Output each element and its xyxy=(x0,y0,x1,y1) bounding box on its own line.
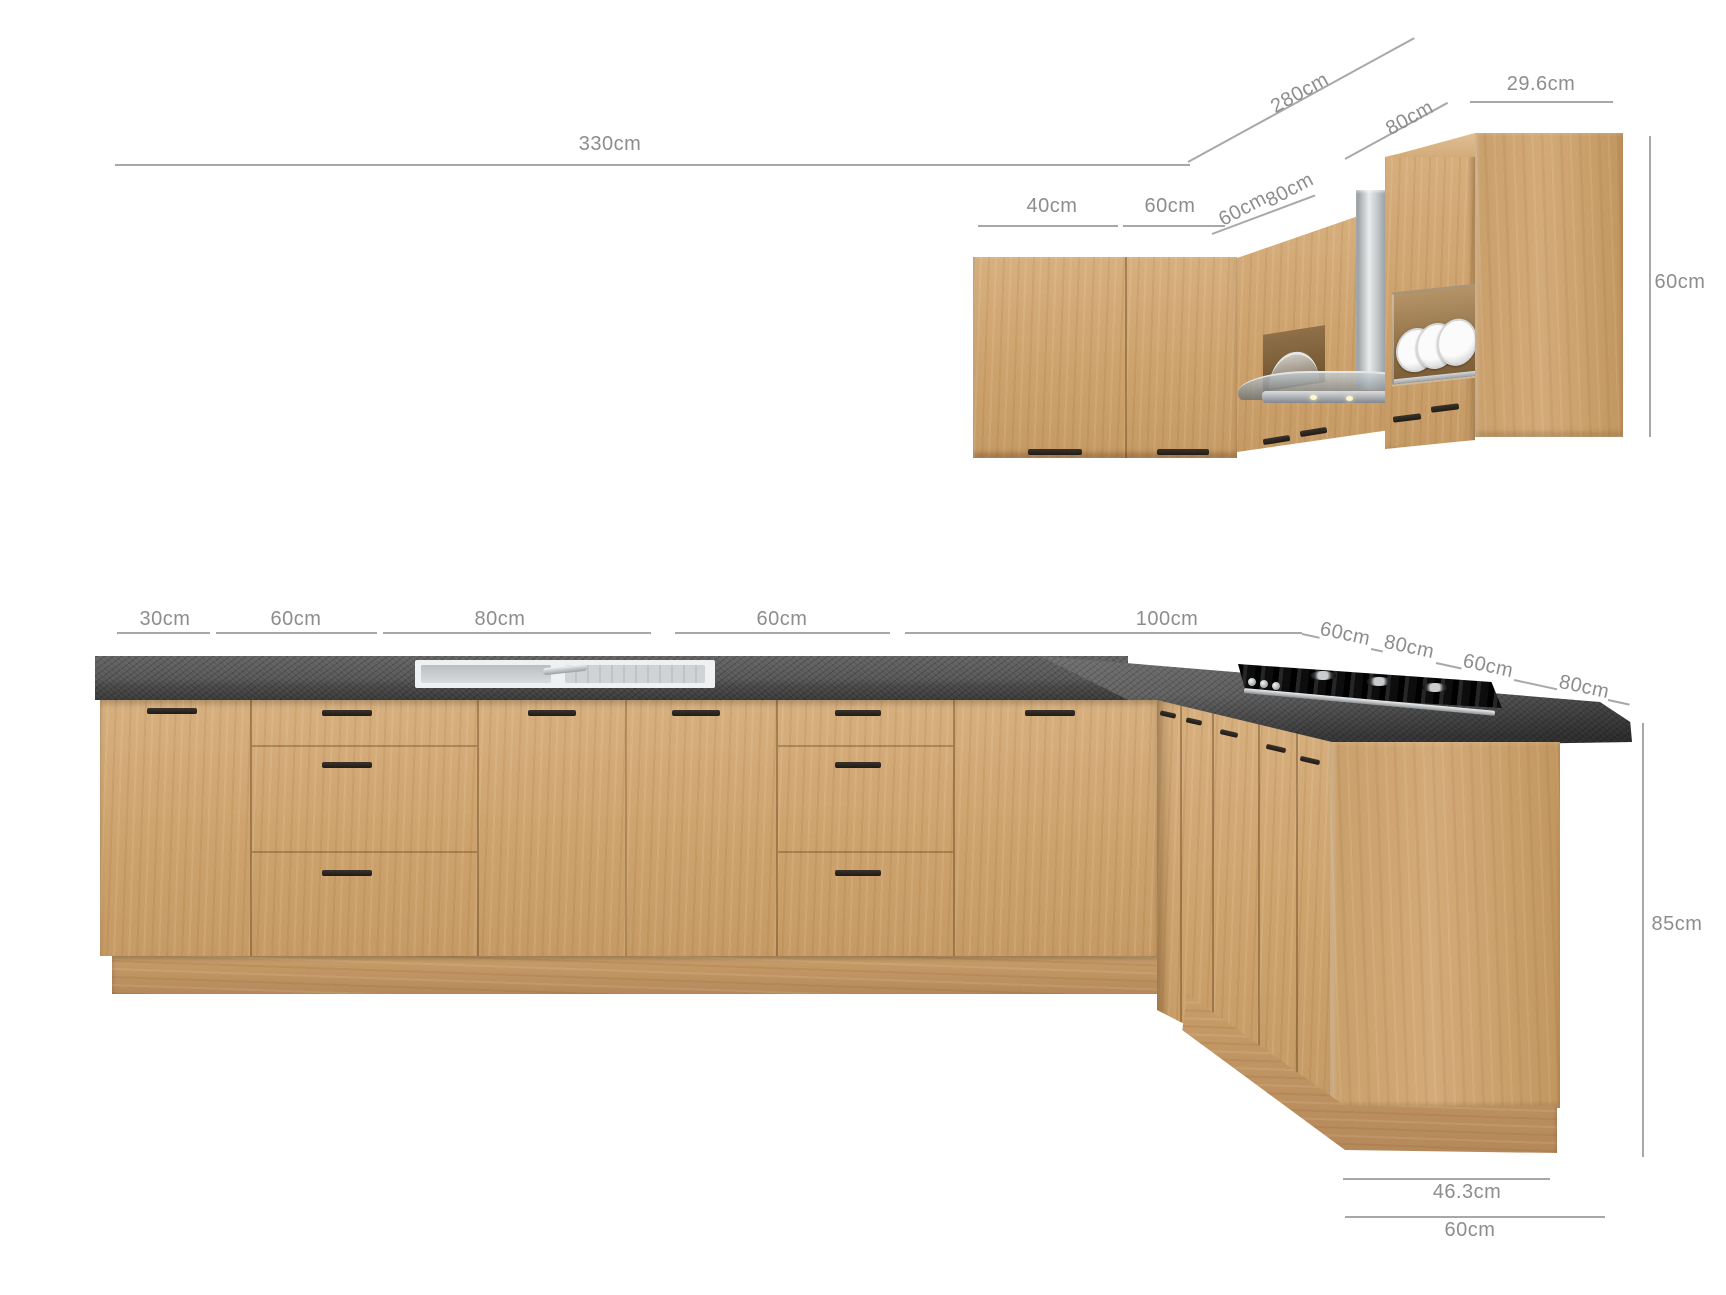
cabinet-handle xyxy=(1220,729,1239,738)
cabinet-handle xyxy=(1160,710,1177,718)
dim-wall-total-line xyxy=(115,164,1190,166)
unit-seam xyxy=(1296,733,1298,1081)
hood-light xyxy=(1346,396,1353,401)
burner-cap xyxy=(1310,671,1336,680)
kitchen-dimension-diagram: 330cm 280cm 80cm 29.6cm 40cm 60cm 60cm 8… xyxy=(0,0,1726,1295)
cabinet-handle xyxy=(1025,710,1075,716)
dim-base-height-label: 85cm xyxy=(1622,913,1726,936)
wall-cabinet-front-group xyxy=(973,257,1237,458)
dim-end-panel-depth-label: 46.3cm xyxy=(1412,1181,1522,1204)
cabinet-handle xyxy=(1300,427,1328,437)
drawer-handle xyxy=(835,710,881,716)
dim-base1-line xyxy=(117,632,210,634)
dim-end-panel-depth-line xyxy=(1343,1178,1550,1180)
cabinet-handle xyxy=(1263,435,1291,445)
cabinet-handle xyxy=(1431,403,1460,412)
cabinet-handle xyxy=(1266,744,1287,753)
drawer-seam xyxy=(778,851,953,853)
cabinet-handle xyxy=(1300,756,1321,765)
wall-cabinet-end-side-panel xyxy=(1475,133,1623,437)
dim-base5-label: 100cm xyxy=(1112,608,1222,631)
cabinet-handle xyxy=(528,710,576,716)
dim-base4-label: 60cm xyxy=(727,608,837,631)
unit-seam xyxy=(776,700,778,956)
dim-upper-end-width-line xyxy=(1470,101,1613,103)
drawer-handle xyxy=(835,762,881,768)
glass-niche-plates xyxy=(1392,283,1479,386)
dim-base4-line xyxy=(675,632,890,634)
sink xyxy=(415,660,715,688)
drawer-handle xyxy=(322,870,372,876)
sink-bowl xyxy=(421,665,551,683)
drawer-handle xyxy=(322,710,372,716)
hob-knob xyxy=(1272,682,1280,690)
hood-chimney-duct xyxy=(1356,190,1390,390)
unit-seam xyxy=(1212,713,1214,1038)
dim-upper-door-left-line xyxy=(978,225,1118,227)
wall-cabinet-end-front xyxy=(1385,135,1475,449)
base-end-side-panel xyxy=(1330,742,1560,1108)
dim-end-total-depth-line xyxy=(1345,1216,1605,1218)
dim-wall-return-label: 280cm xyxy=(1246,57,1354,130)
door-seam xyxy=(625,700,627,956)
drawer-handle xyxy=(835,870,881,876)
cabinet-handle xyxy=(1157,449,1209,455)
drawer-seam xyxy=(252,851,477,853)
base-cabinets-front xyxy=(100,700,1157,956)
dim-base2-label: 60cm xyxy=(241,608,351,631)
dim-base5-line xyxy=(905,632,1302,634)
dim-base3-line xyxy=(383,632,651,634)
dim-base2-line xyxy=(216,632,377,634)
unit-seam xyxy=(1258,724,1260,1062)
cabinet-handle xyxy=(672,710,720,716)
cabinet-handle xyxy=(1186,717,1203,725)
hob-knob xyxy=(1248,678,1256,686)
unit-seam xyxy=(1180,705,1182,1022)
plinth-front xyxy=(112,956,1187,994)
dim-wall-total-label: 330cm xyxy=(555,133,665,156)
cabinet-handle xyxy=(1393,413,1422,422)
hob-knob xyxy=(1260,680,1268,688)
drawer-seam xyxy=(778,745,953,747)
dim-upper-end-width-label: 29.6cm xyxy=(1486,73,1596,96)
unit-seam xyxy=(250,700,252,956)
dim-upper-height-label: 60cm xyxy=(1625,271,1726,294)
cabinet-handle xyxy=(1028,449,1082,455)
unit-seam xyxy=(953,700,955,956)
dim-base-height-line xyxy=(1642,723,1644,1157)
burner-cap xyxy=(1422,683,1448,692)
drawer-seam xyxy=(252,745,477,747)
niche-shelf xyxy=(1394,371,1477,385)
dim-base3-label: 80cm xyxy=(445,608,555,631)
drawer-handle xyxy=(322,762,372,768)
countertop-front xyxy=(95,656,1128,700)
dim-upper-door-left-label: 40cm xyxy=(997,195,1107,218)
dim-end-total-depth-label: 60cm xyxy=(1415,1219,1525,1242)
cabinet-handle xyxy=(147,708,197,714)
hood-light xyxy=(1310,395,1317,400)
wall-door-seam xyxy=(1125,257,1127,458)
burner-cap xyxy=(1366,677,1392,686)
dim-base1-label: 30cm xyxy=(110,608,220,631)
unit-seam xyxy=(477,700,479,956)
